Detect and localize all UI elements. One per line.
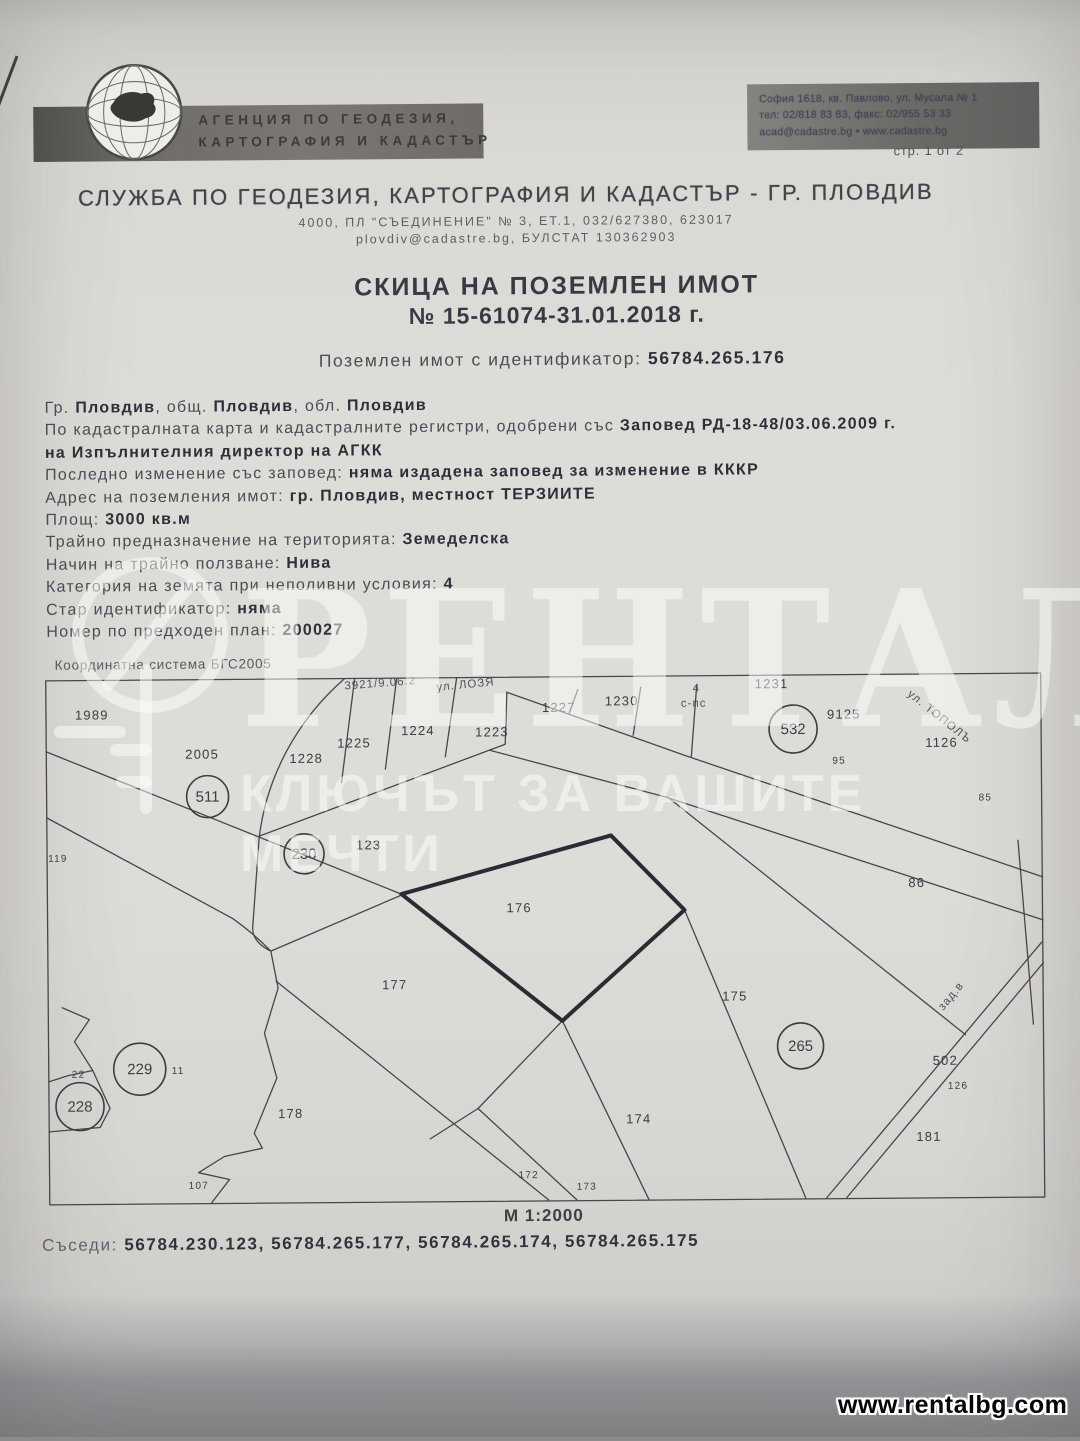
coordinate-system-label: Координатна система БГС2005 [55, 656, 272, 673]
region-circle: 230 [284, 834, 324, 874]
parcel-label: 95 [832, 756, 846, 767]
parcel-label: 1224 [401, 723, 435, 738]
svg-text:265: 265 [788, 1038, 813, 1055]
svg-text:230: 230 [291, 846, 316, 863]
parcel-label: 502 [933, 1053, 958, 1068]
region-circle: 532 [769, 705, 817, 753]
svg-text:229: 229 [127, 1061, 152, 1078]
parcel-label: 123 [356, 837, 381, 852]
parcel-label: 119 [48, 854, 68, 865]
parcel-label: 107 [189, 1181, 209, 1192]
parcel-label: 173 [577, 1182, 597, 1193]
cadastral-map: 5112305322292282651989200511912281225122… [45, 672, 1046, 1208]
property-description: Гр. Пловдив, общ. Пловдив, обл. Пловдив … [44, 390, 1026, 644]
parcel-label: 126 [948, 1081, 968, 1092]
parcel-label: 22 [72, 1070, 86, 1081]
property-identifier-line: Поземлен имот с идентификатор: 56784.265… [27, 345, 1077, 374]
region-circle: 229 [114, 1043, 166, 1095]
parcel-label: 177 [382, 977, 407, 992]
agency-name: АГЕНЦИЯ ПО ГЕОДЕЗИЯ, КАРТОГРАФИЯ И КАДАС… [198, 107, 492, 153]
agency-name-line2: КАРТОГРАФИЯ И КАДАСТЪР [198, 129, 491, 153]
identifier-label: Поземлен имот с идентификатор: [319, 348, 642, 371]
parcel-label: 176 [506, 900, 531, 915]
parcel-label: 1230 [605, 693, 639, 708]
parcel-label: 1223 [475, 724, 509, 739]
parcel-label: 172 [519, 1170, 539, 1181]
neighbors-line: Съседи: 56784.230.123, 56784.265.177, 56… [42, 1231, 699, 1256]
parcel-label: 1126 [925, 735, 958, 750]
svg-text:228: 228 [67, 1099, 92, 1116]
street-label: зад.в [936, 980, 966, 1013]
street-label: ул. ЛОЗЯ [436, 676, 495, 693]
neighbors-label: Съседи: [42, 1235, 118, 1255]
page-number: стр. 1 от 2 [893, 143, 963, 159]
street-label: 3921/9.06.2 [344, 675, 416, 693]
head-office-address-block: София 1618, кв. Павлово, ул. Мусала № 1 … [747, 82, 1040, 150]
parcel-label: 1228 [289, 751, 323, 766]
parcel-label: 11 [172, 1066, 185, 1077]
parcel-label: 181 [916, 1129, 941, 1144]
region-circle: 265 [777, 1023, 823, 1069]
parcel-label: 2005 [185, 747, 219, 762]
office-title: СЛУЖБА ПО ГЕОДЕЗИЯ, КАРТОГРАФИЯ И КАДАСТ… [0, 178, 1016, 212]
parcel-label: 86 [908, 875, 925, 890]
parcel-label: 1231 [755, 676, 789, 691]
street-label: с-пс [681, 698, 707, 710]
cadastral-map-drawing: 5112305322292282651989200511912281225122… [45, 672, 1046, 1208]
parcel-label: 1989 [75, 707, 109, 722]
map-annotations: 5112305322292282651989200511912281225122… [47, 672, 996, 1197]
parcel-label: 178 [278, 1106, 303, 1121]
parcel-label: 9125 [827, 706, 861, 721]
neighbors-values: 56784.230.123, 56784.265.177, 56784.265.… [124, 1231, 699, 1255]
svg-text:532: 532 [781, 721, 806, 738]
parcel-label: 1225 [337, 735, 371, 750]
agency-globe-logo-icon [83, 61, 186, 164]
parcel-label: 1227 [542, 700, 576, 715]
svg-text:511: 511 [196, 789, 220, 806]
website-url: www.rentalbg.com [838, 1391, 1067, 1420]
region-circle: 228 [56, 1082, 104, 1130]
scan-edge-mark [0, 56, 18, 113]
parcel-label: 85 [979, 792, 993, 803]
region-circle: 511 [186, 775, 228, 817]
subject-parcel-outline [401, 835, 685, 1022]
street-label: 4 [693, 683, 701, 695]
parcel-label: 174 [626, 1111, 651, 1126]
parcel-label: 175 [722, 988, 747, 1003]
head-office-address-line3: acad@cadastre.bg • www.cadastre.bg [759, 122, 1031, 140]
agency-name-line1: АГЕНЦИЯ ПО ГЕОДЕЗИЯ, [198, 107, 491, 131]
scanned-document: АГЕНЦИЯ ПО ГЕОДЕЗИЯ, КАРТОГРАФИЯ И КАДАС… [0, 0, 1080, 1441]
identifier-value: 56784.265.176 [648, 347, 786, 368]
